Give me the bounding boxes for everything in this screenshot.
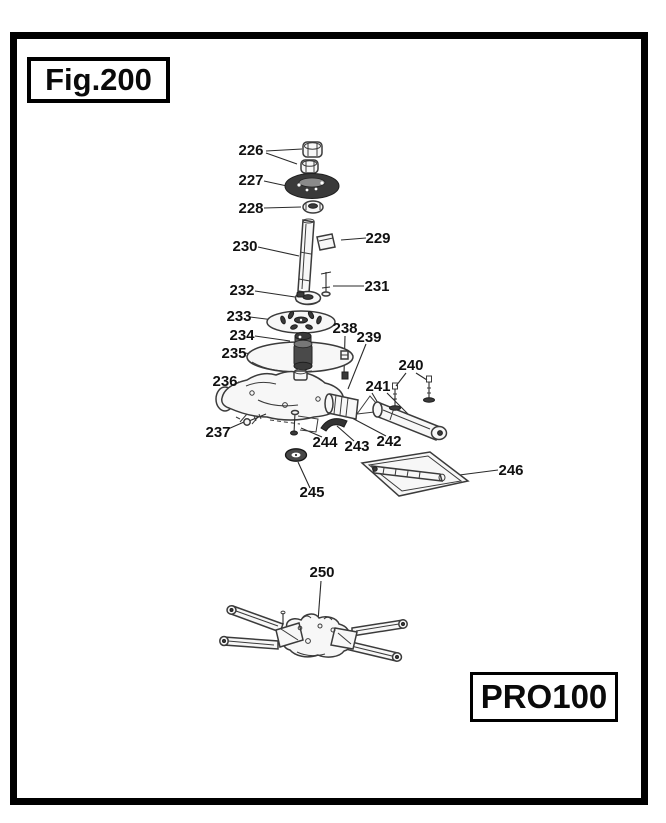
cover-plate-246 — [362, 452, 468, 496]
callout-240: 240 — [398, 357, 423, 374]
shaft-230 — [298, 219, 314, 293]
collar-232 — [296, 292, 321, 305]
callout-233: 233 — [226, 308, 251, 325]
callout-226: 226 — [238, 142, 263, 159]
callout-238: 238 — [332, 320, 357, 337]
callout-229: 229 — [365, 230, 390, 247]
callout-236: 236 — [212, 373, 237, 390]
callout-235: 235 — [221, 345, 246, 362]
callout-250: 250 — [309, 564, 334, 581]
stud-screws-240 — [390, 376, 435, 410]
callout-242: 242 — [376, 433, 401, 450]
seal-washer-245 — [286, 449, 307, 461]
pin-231 — [321, 272, 331, 296]
flange-nut-228 — [303, 201, 323, 213]
callout-239: 239 — [356, 329, 381, 346]
guard-disc-235 — [247, 340, 353, 372]
key-229 — [317, 234, 335, 250]
callout-245: 245 — [299, 484, 324, 501]
callout-228: 228 — [238, 200, 263, 217]
callout-244: 244 — [312, 434, 338, 451]
rotor-assembly-250 — [220, 606, 407, 661]
hex-nuts-226 — [301, 142, 322, 173]
callout-243: 243 — [344, 438, 369, 455]
callout-232: 232 — [229, 282, 254, 299]
catalog-page: { "page": { "background": "#ffffff", "in… — [0, 0, 666, 823]
callout-234: 234 — [229, 327, 255, 344]
callout-237: 237 — [205, 424, 230, 441]
callout-227: 227 — [238, 172, 263, 189]
lever-243 — [321, 419, 347, 431]
exploded-parts-diagram: 226 227 228 229 230 231 232 233 234 235 … — [0, 0, 666, 823]
callout-231: 231 — [364, 278, 389, 295]
callout-246: 246 — [498, 462, 523, 479]
callout-241: 241 — [365, 378, 390, 395]
washer-disc-233 — [267, 311, 335, 333]
callout-230: 230 — [232, 238, 257, 255]
pulley-gear-227 — [285, 174, 339, 199]
